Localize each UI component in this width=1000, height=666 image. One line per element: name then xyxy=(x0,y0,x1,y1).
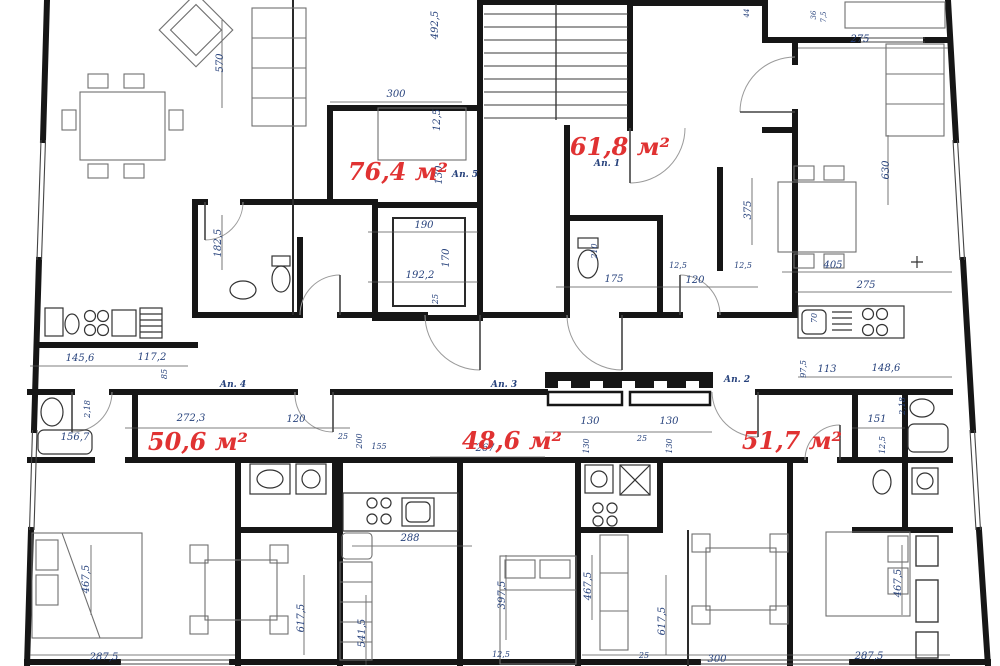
elevator-cab xyxy=(393,218,465,306)
dimension-label: 272,3 xyxy=(176,413,206,424)
apartment-label: Ап. 3 xyxy=(490,380,517,390)
dimension-label: 25 xyxy=(431,294,440,305)
area-label: 76,4 м² xyxy=(348,157,448,186)
dimension-label: 12,5 xyxy=(878,436,887,454)
dimension-label: 7,5 xyxy=(820,11,828,23)
floor-plan-page: 570492,530012,513044367,5275630375405275… xyxy=(0,0,1000,666)
area-label: 61,8 м² xyxy=(570,132,670,161)
dimension-label: 275 xyxy=(855,280,875,291)
dimension-label: 287,5 xyxy=(854,651,884,662)
dimension-label: 467,5 xyxy=(893,569,904,599)
dimension-label: 85 xyxy=(160,369,169,379)
sofa-top-left xyxy=(252,8,306,126)
dimension-label: 275 xyxy=(849,34,869,45)
dimension-label: 492,5 xyxy=(430,11,441,41)
dimension-label: 155 xyxy=(371,442,386,451)
kitchen-top-left xyxy=(45,308,162,338)
dimension-label: 148,6 xyxy=(872,363,901,374)
cabinet xyxy=(378,108,466,160)
dimension-label: 120 xyxy=(685,275,705,286)
area-label: 48,6 м² xyxy=(462,426,562,455)
dimension-label: 130 xyxy=(582,438,591,453)
dimension-label: 25 xyxy=(636,434,647,443)
dimension-label: 12,5 xyxy=(669,261,687,270)
staircase xyxy=(484,4,628,120)
dimension-label: 288 xyxy=(399,533,419,544)
bed-bottom-right xyxy=(826,532,938,658)
dimension-label: 25 xyxy=(337,432,348,441)
dimension-label: 617,5 xyxy=(657,607,668,636)
floorplan-svg: 570492,530012,513044367,5275630375405275… xyxy=(0,0,1000,666)
dimension-labels-layer: 570492,530012,513044367,5275630375405275… xyxy=(61,9,907,665)
dimension-label: 12,5 xyxy=(432,109,443,131)
dimension-label: 287,5 xyxy=(89,652,119,663)
dimension-label: 130 xyxy=(659,416,679,427)
dimension-label: 130 xyxy=(665,438,674,453)
area-label: 50,6 м² xyxy=(148,427,248,456)
dimension-label: 630 xyxy=(881,160,892,180)
apartment-label: Ап. 1 xyxy=(593,159,620,169)
dimension-label: 25 xyxy=(638,651,649,660)
dimension-label: 210 xyxy=(590,243,599,259)
dimension-label: 541,5 xyxy=(357,619,368,648)
dimension-label: 182,5 xyxy=(213,229,224,258)
wardrobe-column xyxy=(600,535,628,650)
apartment-label: Ап. 4 xyxy=(219,380,246,390)
dining-table-top-left xyxy=(62,74,183,178)
furniture-layer xyxy=(32,0,948,664)
apartment-label: Ап. 2 xyxy=(723,375,750,385)
dimension-label: 2,18 xyxy=(898,397,907,416)
dimension-label: 467,5 xyxy=(81,565,92,595)
dimension-label: 97,5 xyxy=(799,360,808,378)
area-label: 51,7 м² xyxy=(742,426,842,455)
dimension-label: 190 xyxy=(414,220,434,231)
dimension-label: 70 xyxy=(810,313,819,323)
dimension-label: 2,18 xyxy=(83,400,92,419)
walls-layer xyxy=(27,0,988,666)
dimension-label: 405 xyxy=(822,260,842,271)
wardrobe-wall xyxy=(545,372,713,405)
sofa-top-right xyxy=(845,2,945,136)
dimension-label: 117,2 xyxy=(138,352,167,363)
dimension-label: 200 xyxy=(355,433,364,449)
dimension-label: 12,5 xyxy=(492,650,510,659)
dimension-label: 170 xyxy=(441,248,452,268)
dimension-label: 113 xyxy=(817,364,836,375)
dimension-label: 192,2 xyxy=(406,270,435,281)
dimension-label: 570 xyxy=(215,53,226,73)
dimension-label: 145,6 xyxy=(66,353,95,364)
dimension-label: 151 xyxy=(867,414,886,425)
kitchen-top-right xyxy=(798,256,923,338)
doors-layer xyxy=(72,57,840,460)
apartment-label: Ап. 5 xyxy=(451,170,478,180)
dining-table-bottom-right xyxy=(692,534,788,624)
dimension-label: 375 xyxy=(743,200,754,219)
dining-table-top-right xyxy=(778,166,856,268)
dimension-label: 130 xyxy=(580,416,600,427)
dimension-label: 44 xyxy=(743,9,751,19)
area-labels-layer: 76,4 м²61,8 м²50,6 м²48,6 м²51,7 м² xyxy=(148,132,842,456)
bed-center xyxy=(500,556,576,664)
dimension-label: 300 xyxy=(707,654,727,665)
dimension-label: 12,5 xyxy=(734,261,752,270)
dimension-label: 300 xyxy=(386,89,406,100)
dimension-label: 36 xyxy=(810,10,818,19)
dimension-label: 120 xyxy=(286,414,306,425)
dimension-label: 175 xyxy=(604,274,623,285)
dimension-label: 467,5 xyxy=(583,572,594,602)
dimension-label: 617,5 xyxy=(296,604,307,633)
dimension-label: 397,5 xyxy=(497,581,508,610)
dimension-label: 156,7 xyxy=(61,432,90,443)
